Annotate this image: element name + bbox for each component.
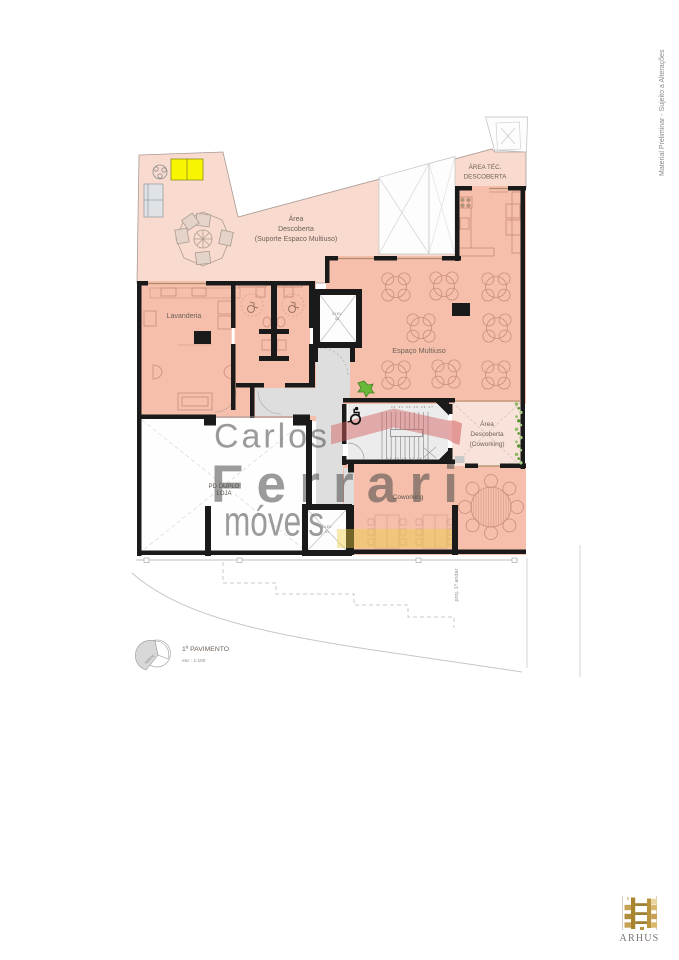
svg-text:ELEV: ELEV xyxy=(332,312,342,316)
svg-text:ARHUS: ARHUS xyxy=(620,933,660,944)
svg-text:Área: Área xyxy=(480,419,494,428)
svg-text:01: 01 xyxy=(325,530,329,534)
svg-text:Coworking: Coworking xyxy=(393,494,424,501)
svg-text:32 31 30 29 28 27: 32 31 30 29 28 27 xyxy=(391,405,434,409)
svg-text:1º PAVIMENTO: 1º PAVIMENTO xyxy=(182,646,229,653)
svg-text:ELEV: ELEV xyxy=(322,525,332,529)
svg-text:(Coworking): (Coworking) xyxy=(469,441,504,448)
svg-text:LOJA: LOJA xyxy=(216,491,231,497)
svg-text:Material Preliminar - Sujeito: Material Preliminar - Sujeito a Alteraçõ… xyxy=(659,49,666,176)
svg-text:esc : 1:100: esc : 1:100 xyxy=(182,658,206,664)
svg-text:Área: Área xyxy=(289,214,304,223)
svg-text:Lavanderia: Lavanderia xyxy=(167,313,202,320)
svg-text:Descoberta: Descoberta xyxy=(470,431,504,438)
svg-text:PD DUPLO: PD DUPLO xyxy=(209,484,240,490)
svg-text:ÁREA TÉC.: ÁREA TÉC. xyxy=(469,162,502,171)
svg-text:proj. 1º andar: proj. 1º andar xyxy=(453,568,460,601)
svg-text:(Suporte Espaco Multiuso): (Suporte Espaco Multiuso) xyxy=(255,236,337,243)
svg-text:Espaço Multiuso: Espaço Multiuso xyxy=(392,346,446,355)
svg-text:Descoberta: Descoberta xyxy=(278,226,314,233)
svg-text:02: 02 xyxy=(335,317,339,321)
svg-text:DESCOBERTA: DESCOBERTA xyxy=(464,174,508,181)
